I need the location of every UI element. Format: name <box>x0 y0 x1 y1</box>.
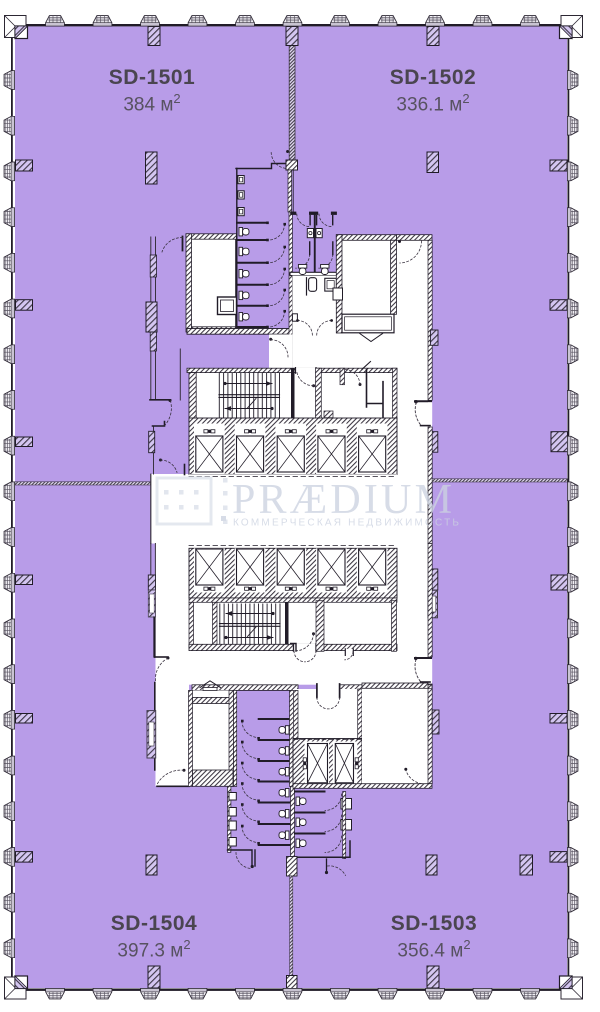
svg-text:PRÆDIUM: PRÆDIUM <box>232 477 455 523</box>
svg-text:КОММЕРЧЕСКАЯ НЕДВИЖИМОСТЬ: КОММЕРЧЕСКАЯ НЕДВИЖИМОСТЬ <box>233 518 461 529</box>
